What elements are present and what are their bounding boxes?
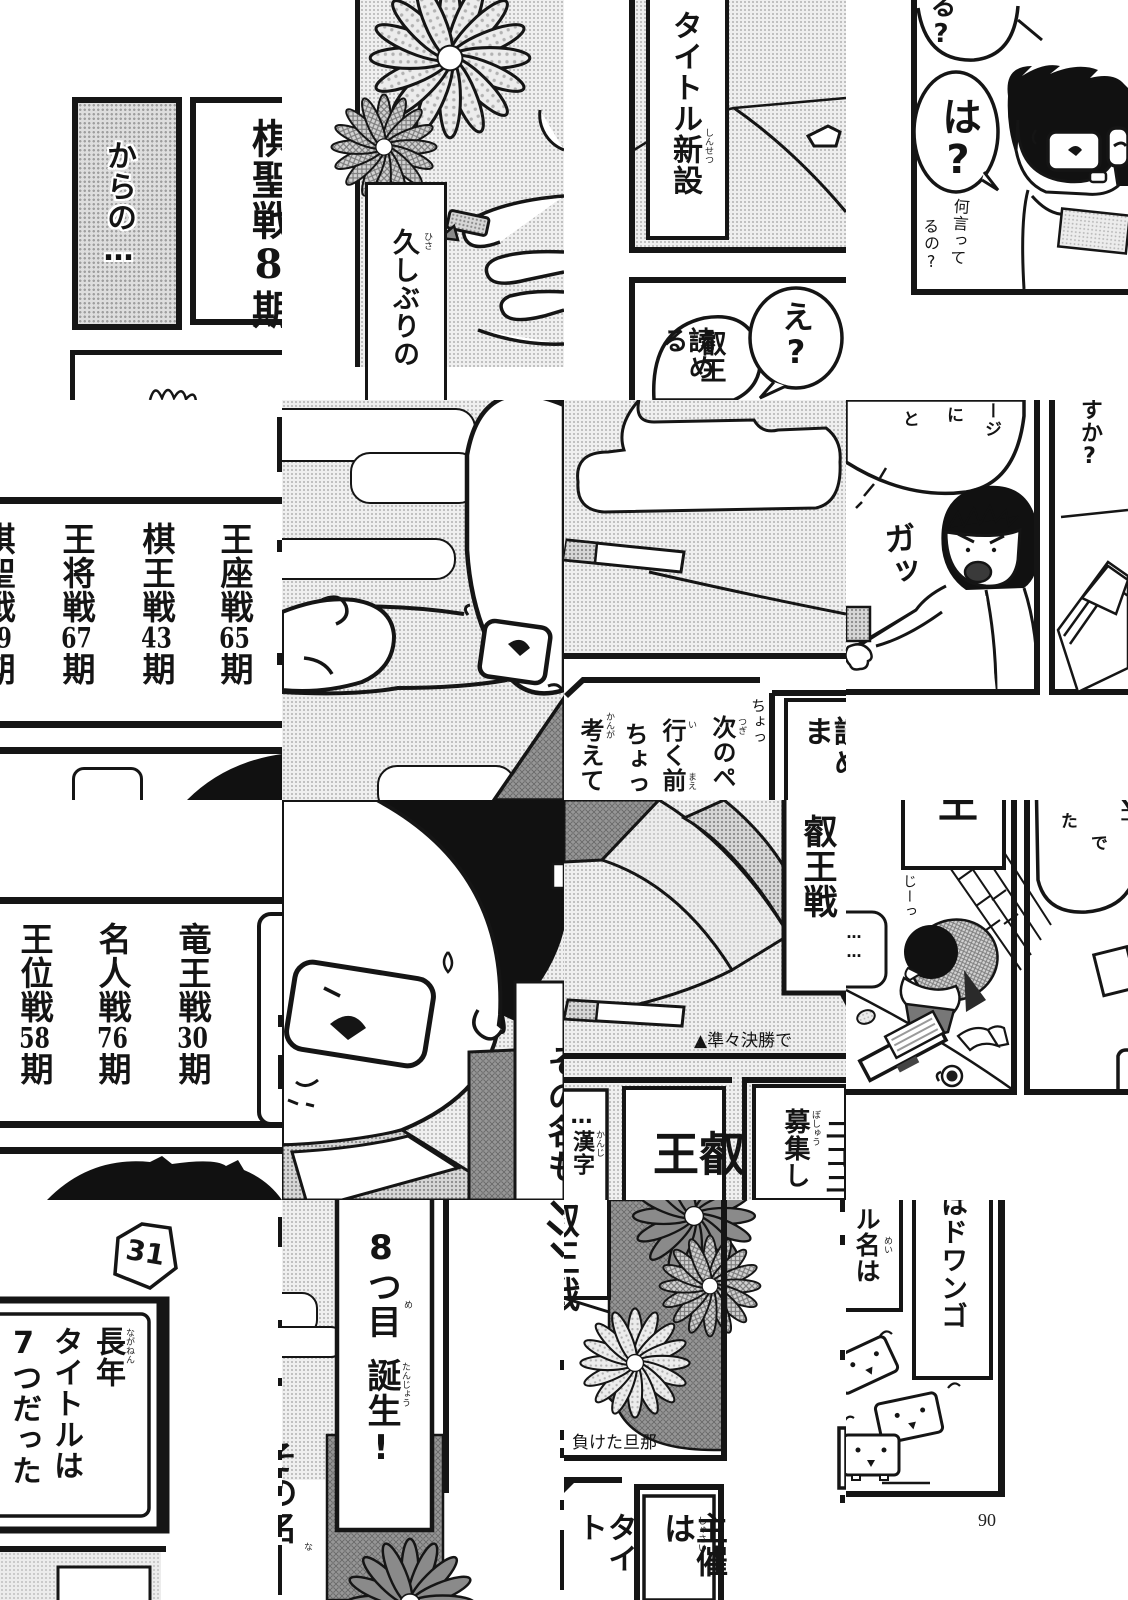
banner-b-text: はドワンゴ (938, 1200, 965, 1330)
caption-line1: 長年 (92, 1326, 122, 1388)
mouse-icon (855, 1008, 876, 1026)
tile-r3c0: 31 長年 ながねん タイトルは 7つだった (0, 1200, 282, 1600)
banner-text: 久しぶりの (390, 228, 417, 368)
tile-r2c0: 竜王戦30期 名人戦76期 王位戦58期 (0, 800, 282, 1200)
mutter-b: るの? (921, 218, 940, 273)
bubble-frag-b: に (944, 406, 961, 424)
chrysanthemum-cross-icon (660, 1236, 761, 1337)
bubble-frag-a: ージ (982, 402, 999, 438)
tile-r1c3: ージ に と ガッ すか? (846, 400, 1128, 800)
furigana: たんじょう (400, 1362, 409, 1407)
bubble-text: え? (780, 300, 812, 372)
tile-r1c0: 王座戦65期 棋王戦43期 王将戦67期 棋聖戦89期 (0, 400, 282, 800)
left-panel-border (564, 1477, 622, 1493)
furigana: よ (832, 720, 841, 729)
page-number: 90 (978, 1510, 996, 1531)
fist-and-arm (282, 597, 507, 693)
tile-r2c1: その名も (282, 800, 564, 1200)
furigana: な (302, 1542, 311, 1551)
manga-page: からの… 棋聖戦8期 久しぶりの ひさ (0, 0, 1128, 1600)
character-art (846, 0, 1128, 400)
smirking-face-art (282, 800, 564, 1200)
nico-tv-icon (846, 1335, 899, 1395)
hair-silhouette-art (0, 800, 282, 1200)
tile-r2c3: 王 じーっ …… た で コ (846, 800, 1128, 1200)
speech-sub-furigana: よ (688, 330, 697, 339)
dots-text: …… (846, 924, 861, 962)
glasses-icon (478, 620, 551, 685)
furigana: つぎ (736, 717, 745, 735)
coffee-cup-icon (937, 1066, 962, 1086)
speech-col: 考えて (578, 718, 602, 793)
furigana: かんじ (594, 1130, 603, 1157)
furigana: ながねん (124, 1328, 133, 1364)
girl-character (846, 486, 1039, 692)
left-panel-border (564, 677, 760, 698)
bubble-frag-ko: コ (1116, 806, 1128, 824)
mouth (1090, 172, 1106, 182)
glasses-icon (284, 960, 436, 1069)
banner-frag-text: 王 (934, 800, 974, 823)
tile-r0c0: からの… 棋聖戦8期 (0, 0, 282, 400)
speech-col: ちょっ (622, 722, 646, 797)
sleeve-fragment (846, 607, 870, 641)
col-left-text: タイト (574, 1512, 634, 1600)
desk-scene-art (846, 800, 1128, 1200)
cut-border-dash (840, 1200, 845, 1212)
tile-r1c1 (282, 400, 564, 800)
chrysanthemum-light-icon (580, 1308, 689, 1417)
bubble-frag-c: と (900, 410, 917, 428)
shirt-stripe (1058, 209, 1128, 254)
piece-number: 31 (123, 1233, 167, 1272)
caption-line3: 7つだった (8, 1326, 38, 1486)
side-text-clipped: その名 (282, 1440, 294, 1545)
furigana: い (686, 720, 695, 729)
right-panel-text: すか? (1078, 400, 1100, 470)
right-text-a: 募集し (782, 1108, 808, 1189)
books-stack (1058, 562, 1128, 692)
speech-col: 次のペ (710, 715, 734, 790)
tile-r3c2: 叡王戦 負けた旦那 タイト 主催は しゅさい (564, 1200, 846, 1600)
tile-r1c2: 次のペ つぎ 行く前 い まえ ちょっ 考えて かんが ちょっ 読めま よ (564, 400, 846, 800)
card-icon (1094, 947, 1128, 996)
cut-border-dash (840, 1235, 845, 1245)
box-text: 主催は (662, 1512, 726, 1600)
banner-art (282, 1200, 564, 1600)
speech-sub: 読める (660, 327, 712, 400)
furigana: めい (882, 1236, 891, 1254)
caption-text: 負けた旦那 (572, 1428, 657, 1453)
sfx-text: ガッ (881, 521, 920, 590)
side-text-clipped: その名も (544, 1044, 564, 1184)
hair-silhouette-art (0, 400, 282, 800)
tile-r0c2: タイトル新設 しんせつ え? 叡王 読める よ (564, 0, 846, 400)
nico-tv-icon (846, 1435, 899, 1480)
kimono-dark-band (469, 1050, 515, 1200)
bubble-main-text: は? (938, 96, 978, 184)
wood-stick-icon (564, 540, 684, 572)
tile-r0c3: る? は? 何言って るの? (846, 0, 1128, 400)
furigana: め (402, 1300, 411, 1309)
handwritten-text: ちょっ (750, 698, 765, 746)
furigana: しゅさい (696, 1516, 705, 1552)
banner-text-b: 誕生! (364, 1358, 398, 1469)
flower-fragment-art (0, 0, 282, 400)
tile-r2c2: 叡王戦 ▲準々決勝で …漢字 かんじ 叡王 募集し ぼしゅう ニコニ (564, 800, 846, 1200)
tile-r0c1: 久しぶりの ひさ (282, 0, 564, 400)
speech-col: 行く前 (660, 718, 684, 793)
hand-grab (846, 644, 872, 669)
wood-stick-icon (564, 1000, 684, 1026)
bubble-top-text: る? (928, 0, 954, 50)
box-big-text: 叡王 (650, 1130, 742, 1200)
furigana: まえ (686, 772, 695, 790)
kimono-collar (494, 698, 564, 800)
bubble-frag-de: で (1088, 834, 1105, 852)
banner-furigana: ひさ (422, 232, 431, 250)
furigana: ぼしゅう (810, 1110, 819, 1146)
furigana: かんが (604, 712, 613, 739)
side-banner-clipped: 叡王戦 (564, 1202, 576, 1313)
fist (282, 599, 394, 691)
open-mouth (965, 562, 991, 582)
nico-boxes-art (846, 1200, 1128, 1600)
sweat-drop-icon (444, 952, 452, 972)
box-small-text: …漢字 (570, 1104, 592, 1176)
tile-r3c3: ル名は めい はドワンゴ 90 (846, 1200, 1128, 1600)
caption-text: ▲準々決勝で (694, 1026, 792, 1051)
boy-character (1008, 65, 1128, 289)
corner-marks (548, 1202, 564, 1256)
speech-bubble-cloud (578, 400, 841, 512)
caption-line2: タイトルは (50, 1326, 80, 1481)
stare-sfx: じーっ (902, 874, 916, 919)
face-and-fist-art (282, 400, 564, 800)
banner-text: 叡王戦 (800, 814, 834, 919)
right-text-b: ニコニ (822, 1116, 846, 1197)
tile-r3c1: 8つ目 め 誕生! たんじょう その名 な (282, 1200, 564, 1600)
cut-border-dash (840, 1495, 845, 1503)
cut-border-dash (840, 1350, 845, 1360)
bubble-frag-ta: た (1058, 812, 1075, 830)
open-book-icon (958, 1026, 1008, 1050)
banner-a-text: ル名は (854, 1206, 879, 1284)
banner-text-a: 8つ目 (364, 1228, 398, 1339)
mutter-a: 何言って (948, 198, 969, 267)
